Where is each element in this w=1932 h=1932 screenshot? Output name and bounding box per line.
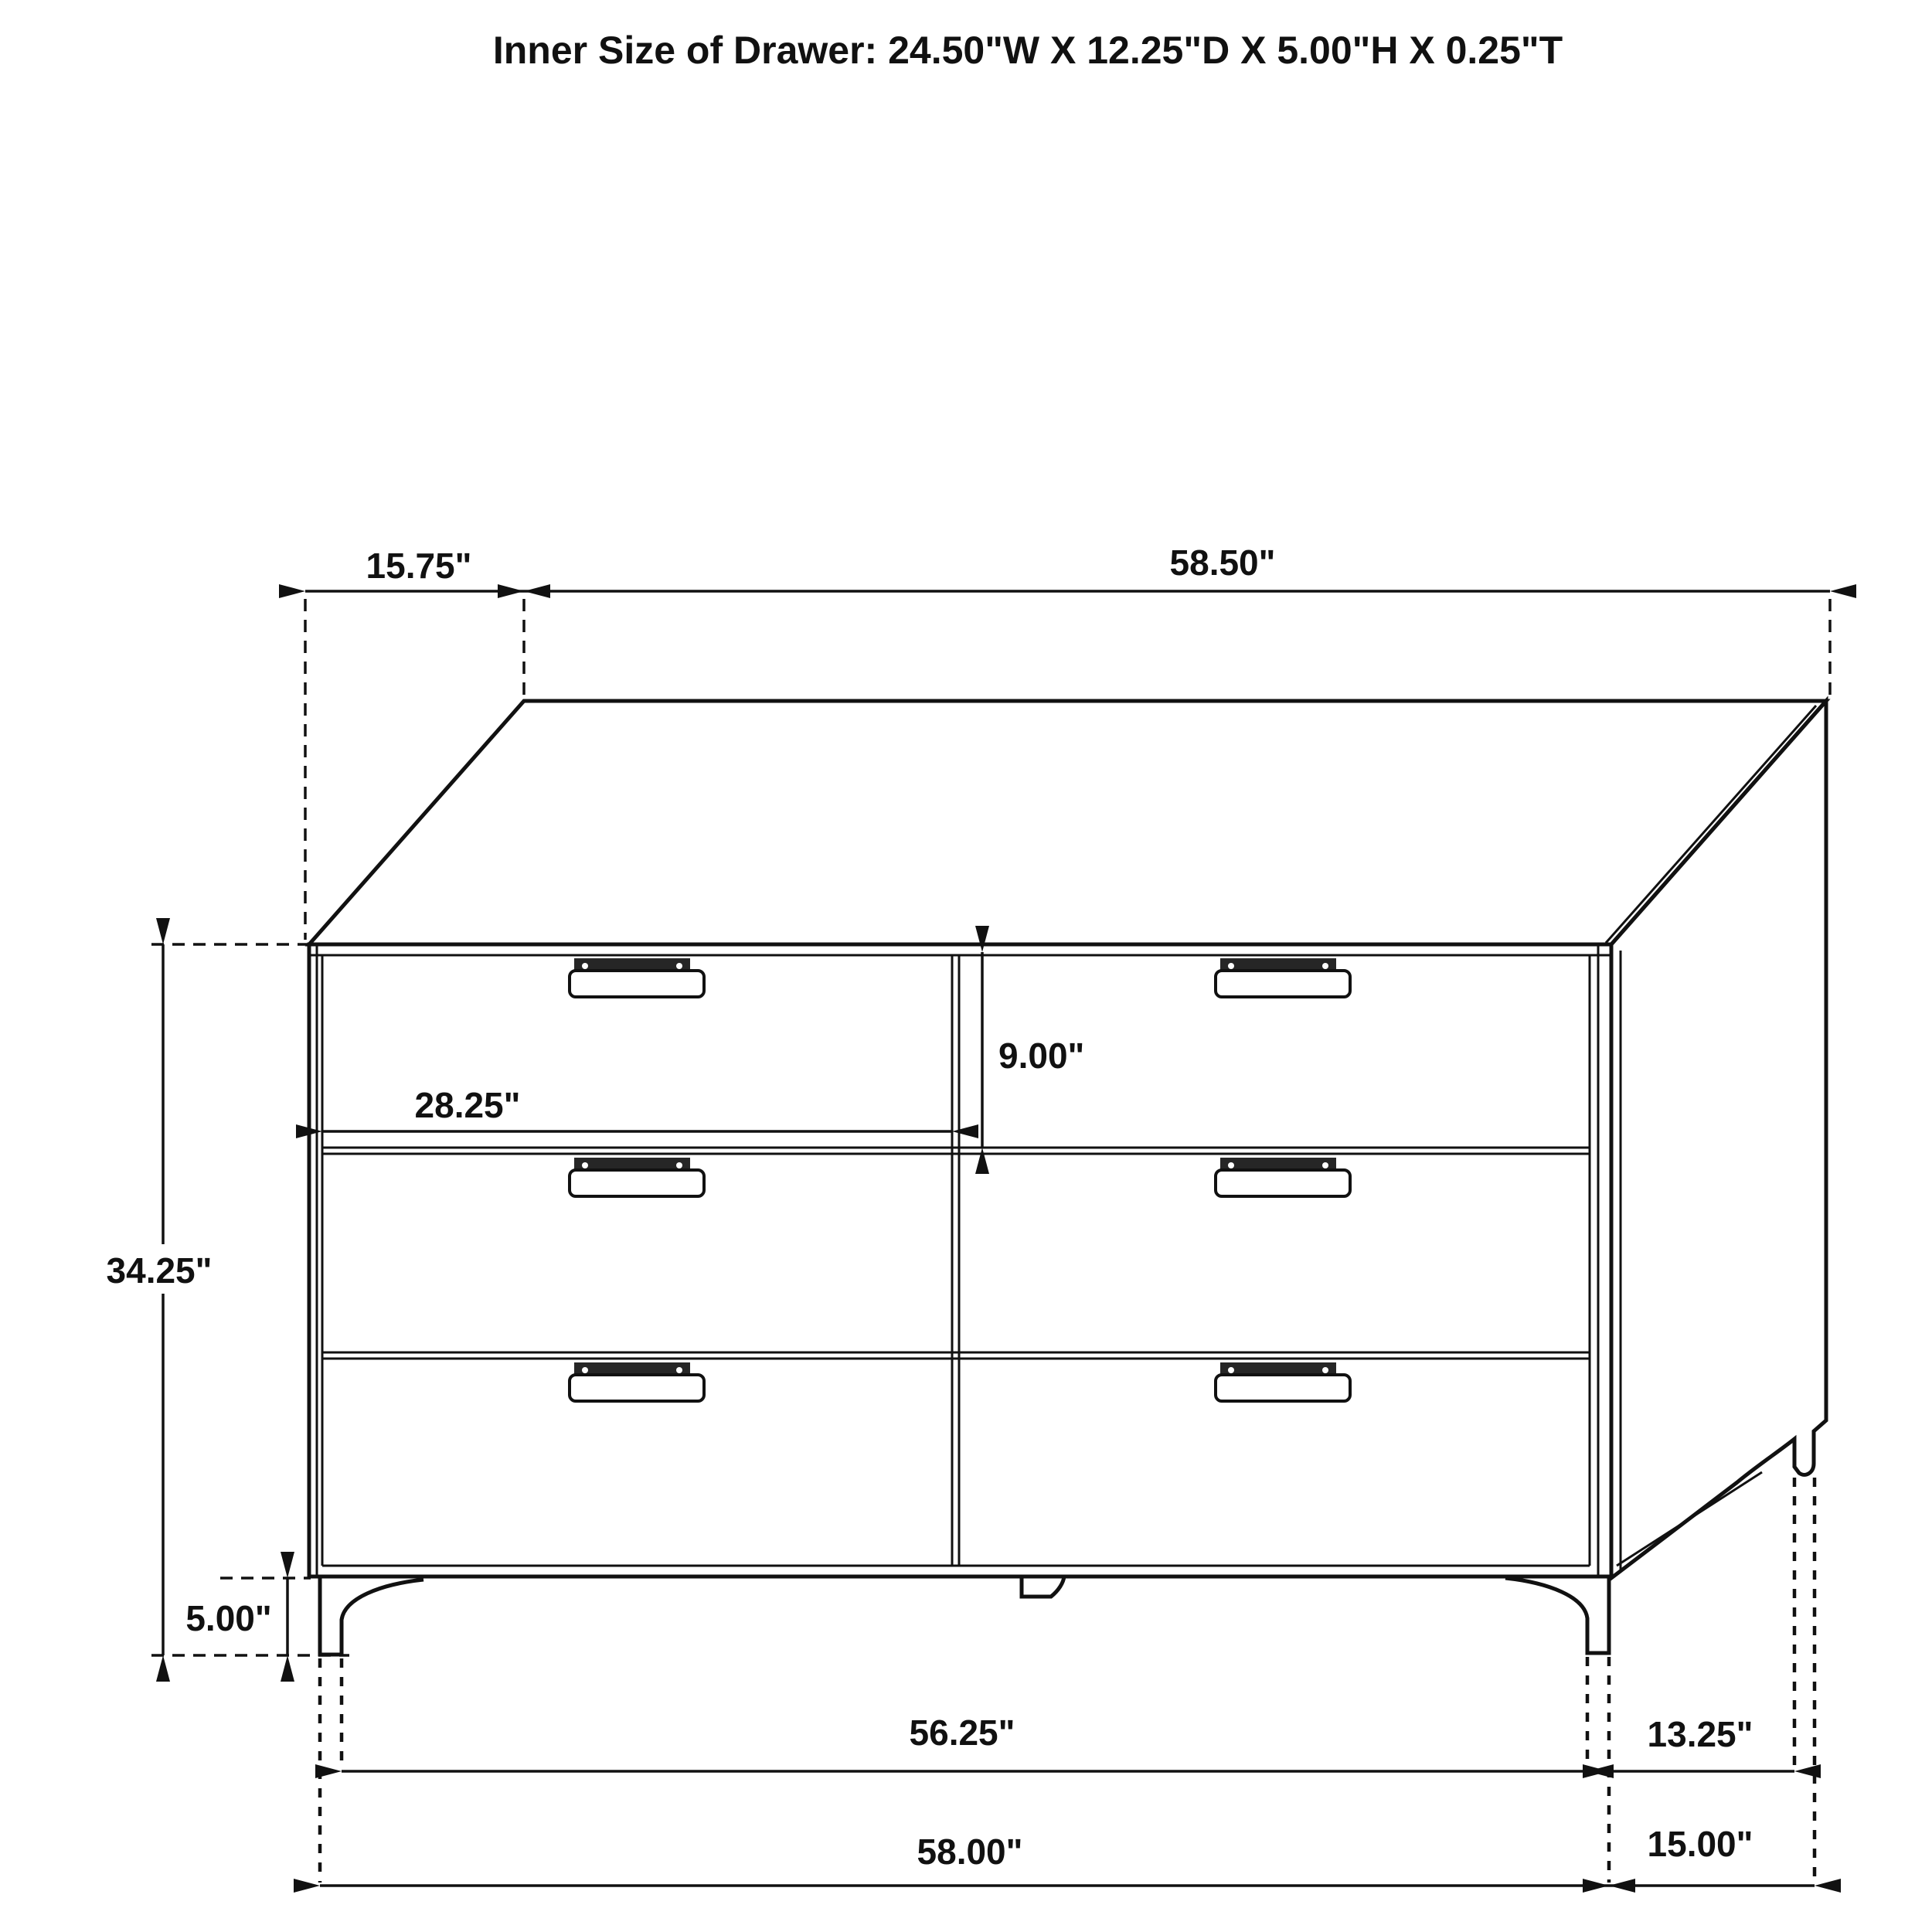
drawer-handle [1216, 958, 1350, 997]
dim-label-overall-height: 34.25" [107, 1250, 213, 1291]
drawer-handle [570, 958, 704, 997]
drawer-handle [1216, 1158, 1350, 1196]
dim-base-depth: 15.00" [1609, 1824, 1815, 1886]
dim-side-leg-span: 13.25" [1609, 1714, 1794, 1771]
dresser-legs [320, 1577, 1609, 1655]
dim-label-top-depth: 15.75" [366, 546, 472, 586]
dresser-top-face [309, 701, 1826, 955]
dresser-front-face [309, 944, 1611, 1577]
center-foot [1022, 1577, 1064, 1597]
page: Inner Size of Drawer: 24.50"W X 12.25"D … [0, 0, 1932, 1932]
dim-leg-height: 5.00" [185, 1578, 311, 1655]
dim-top-depth: 15.75" [305, 546, 524, 940]
dim-label-drawer-width: 28.25" [415, 1085, 521, 1125]
dim-front-leg-span: 56.25" [342, 1713, 1587, 1771]
drawer-row-dividers [322, 1148, 1590, 1359]
dim-label-base-width: 58.00" [917, 1832, 1023, 1872]
dim-label-top-width: 58.50" [1170, 543, 1276, 583]
drawer-handle [570, 1158, 704, 1196]
dresser-dimension-diagram: Inner Size of Drawer: 24.50"W X 12.25"D … [0, 0, 1932, 1932]
dim-label-base-depth: 15.00" [1648, 1824, 1753, 1864]
dim-label-front-leg-span: 56.25" [910, 1713, 1015, 1753]
drawer-handle [570, 1362, 704, 1401]
dim-drawer-height: 9.00" [982, 952, 1084, 1148]
dim-top-width: 58.50" [524, 543, 1830, 697]
front-right-leg [1505, 1578, 1609, 1653]
front-left-leg [320, 1578, 423, 1655]
dim-label-leg-height: 5.00" [185, 1598, 271, 1638]
diagram-title: Inner Size of Drawer: 24.50"W X 12.25"D … [493, 29, 1563, 72]
dim-label-side-leg-span: 13.25" [1648, 1714, 1753, 1754]
drawer-handle [1216, 1362, 1350, 1401]
dim-drawer-width: 28.25" [322, 1085, 952, 1131]
dim-base-width: 58.00" [320, 1832, 1609, 1886]
dresser-drawing [309, 701, 1826, 1655]
dim-label-drawer-height: 9.00" [998, 1036, 1084, 1076]
dresser-side-panel [1611, 701, 1826, 1578]
